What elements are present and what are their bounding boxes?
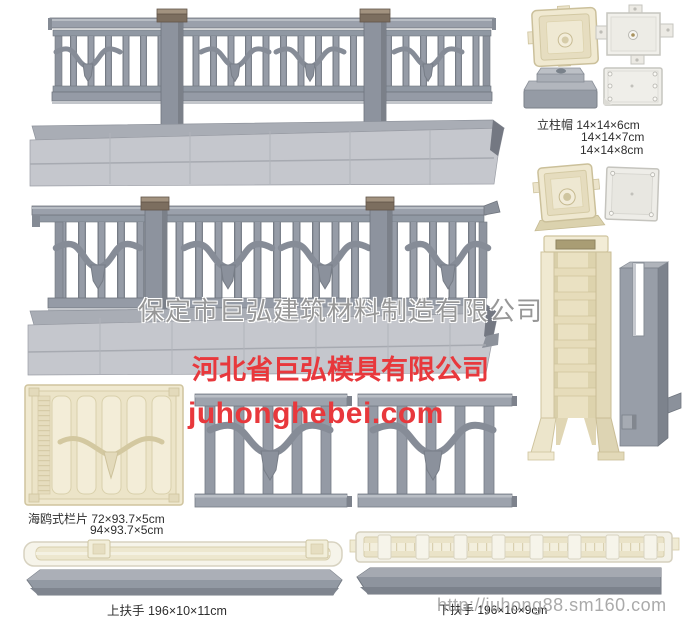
top-handrail-casting <box>27 570 342 595</box>
seagull-panel-mold-cream <box>25 385 183 505</box>
post-base-mold-angled <box>530 163 605 231</box>
watermark-company-text: 保定市巨弘建筑材料制造有限公司 <box>138 291 543 328</box>
post-cap-base-plate <box>604 68 662 105</box>
bottom-handrail-casting <box>357 568 661 594</box>
railing-post <box>360 9 390 128</box>
website-red-text: juhonghebei.com <box>188 397 444 431</box>
label-top-handrail-size: 上扶手 196×10×11cm <box>107 600 227 619</box>
bottom-handrail-mold <box>350 532 679 562</box>
base-beam-1 <box>30 120 504 186</box>
column-mold-tall-cream <box>528 236 624 460</box>
railing-post <box>157 9 187 128</box>
post-cap-casting-gray <box>524 68 597 108</box>
post-cap-cross-plate <box>596 5 673 64</box>
label-post-cap-size-3: 14×14×8cm <box>580 143 643 157</box>
label-post-cap-size-2: 14×14×7cm <box>581 130 644 144</box>
top-handrail-mold <box>24 540 342 566</box>
watermark-url-text: http://juhong88.sm160.com <box>437 595 667 616</box>
product-collage-page: 保定市巨弘建筑材料制造有限公司 河北省巨弘模具有限公司 juhonghebei.… <box>0 0 689 620</box>
label-seagull-panel-size-2: 94×93.7×5cm <box>90 523 163 537</box>
company-name-red-text: 河北省巨弘模具有限公司 <box>192 348 489 387</box>
seagull-railing-small <box>48 9 496 128</box>
post-base-plate-small <box>605 167 659 221</box>
slotted-column-casting-gray <box>620 262 681 446</box>
post-cap-mold-top-view <box>526 4 602 68</box>
